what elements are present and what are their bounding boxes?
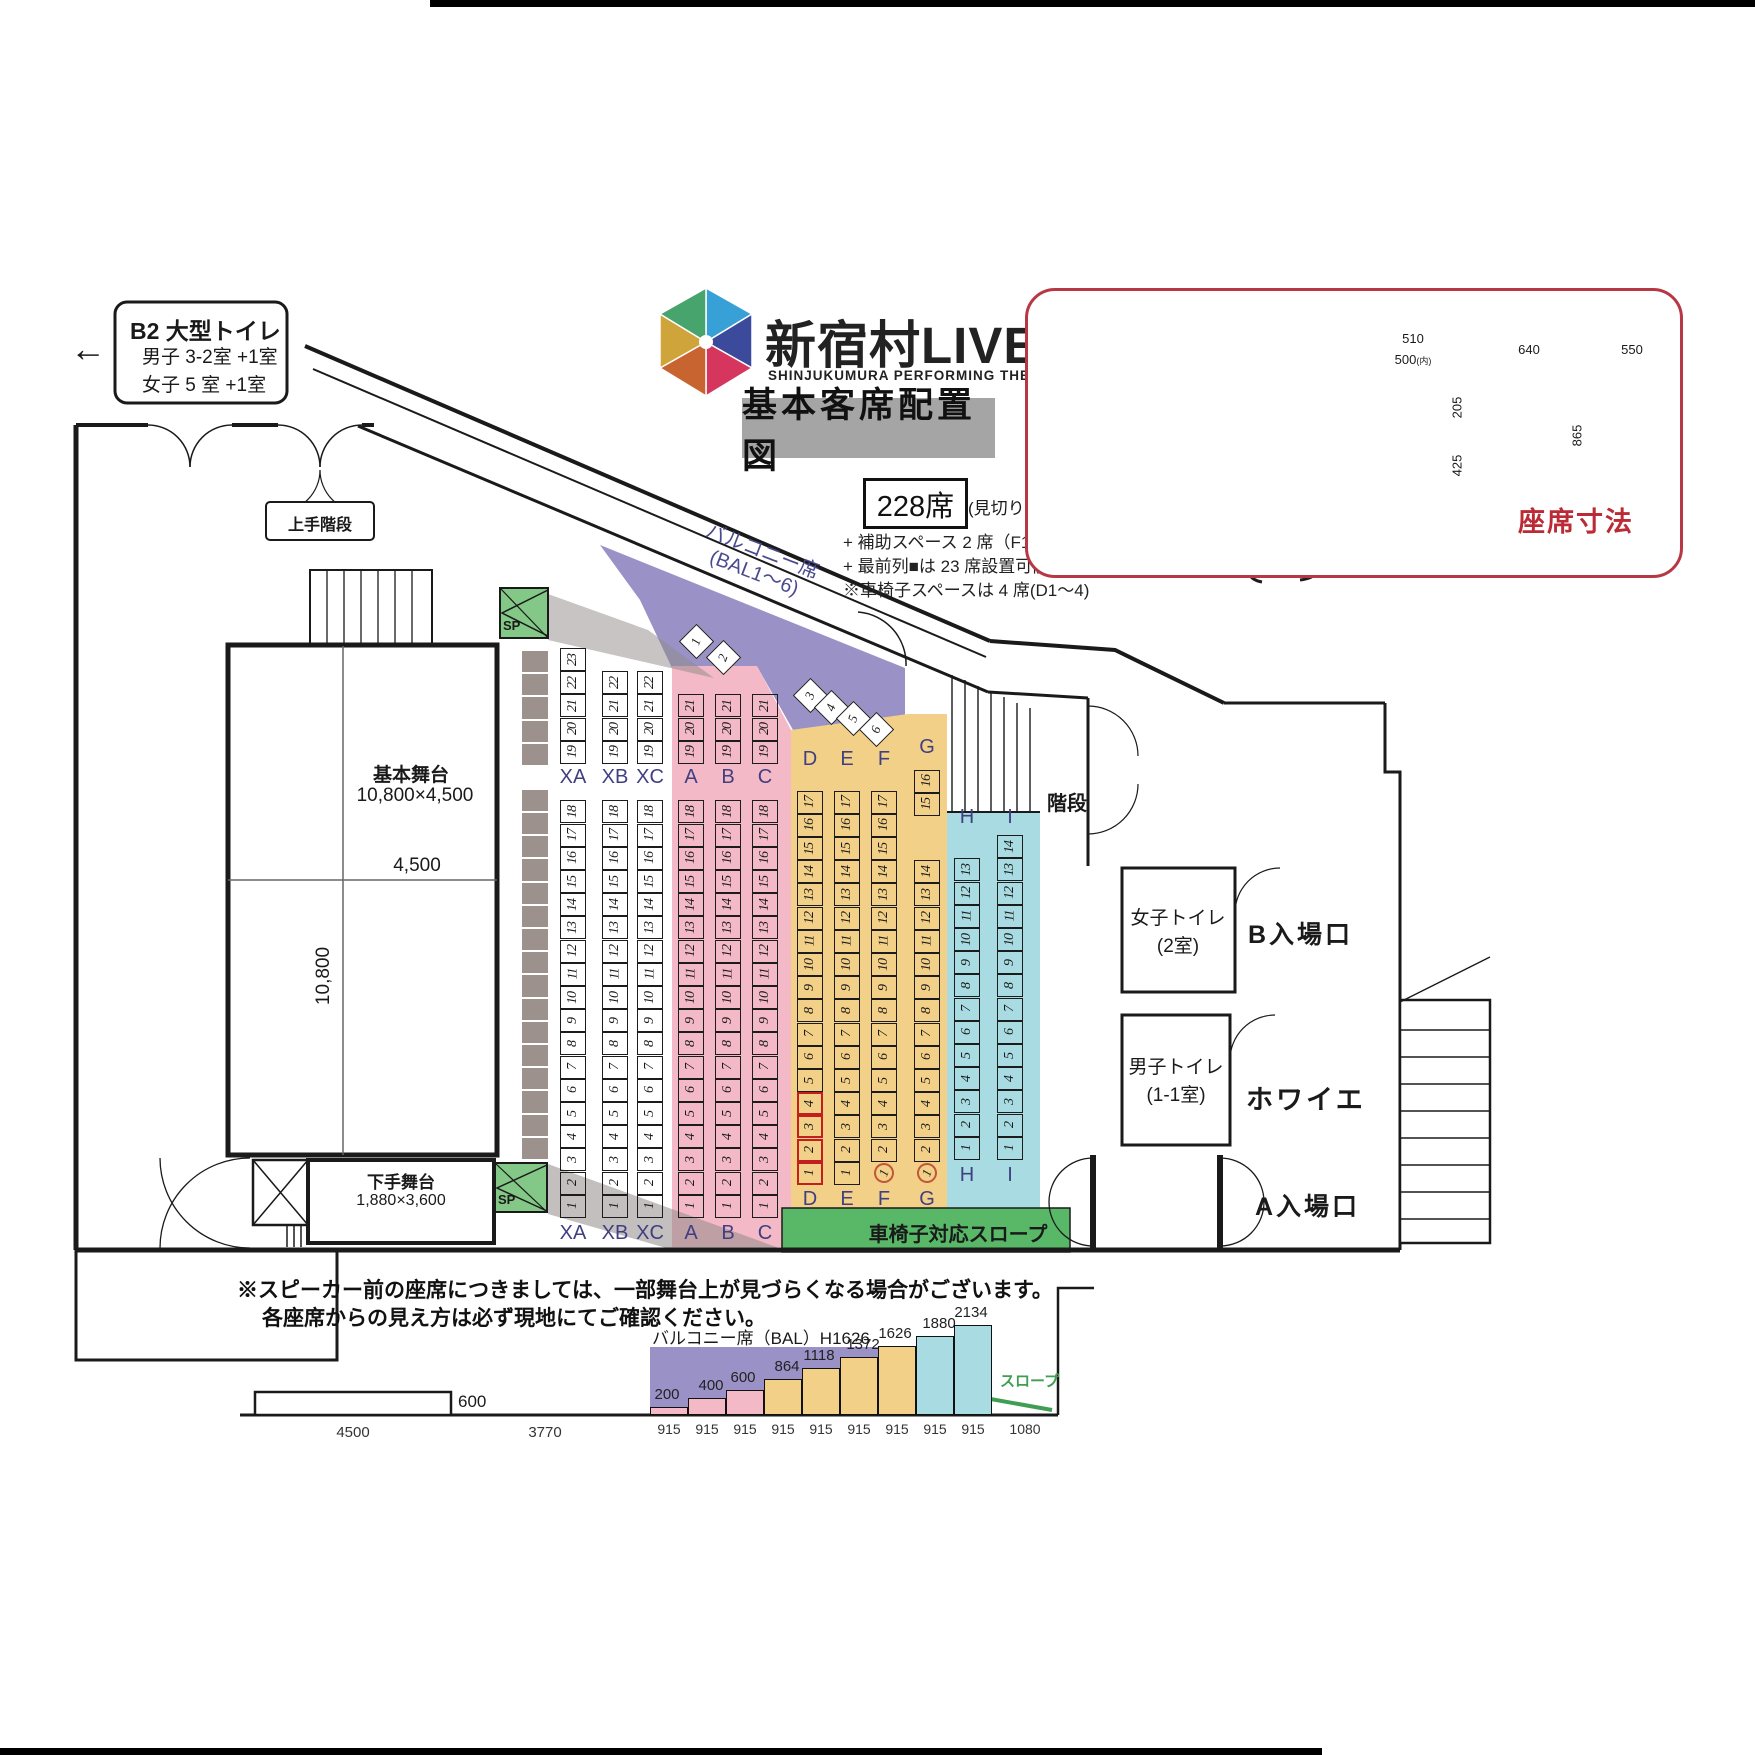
footnote-line2: 各座席からの見え方は必ず現地にてご確認ください。 xyxy=(262,1302,766,1332)
section-stage-height: 600 xyxy=(458,1392,486,1412)
section-step-width-9: 915 xyxy=(961,1421,984,1437)
footnote-line1: ※スピーカー前の座席につきましては、一部舞台上が見づらくなる場合がございます。 xyxy=(237,1274,1053,1304)
section-step-height-2134: 2134 xyxy=(954,1304,987,1321)
section-step-height-864: 864 xyxy=(774,1358,799,1375)
section-step-height-1372: 1372 xyxy=(846,1336,879,1353)
section-stage-width: 4500 xyxy=(336,1424,369,1441)
section-step-600 xyxy=(726,1390,764,1415)
seating-chart-page: ← B2 大型トイレ 男子 3-2室 +1室 女子 5 室 +1室 新宿村LIV… xyxy=(0,0,1755,1755)
section-step-400 xyxy=(688,1398,726,1415)
section-gap-width: 3770 xyxy=(528,1424,561,1441)
section-step-1880 xyxy=(916,1336,954,1415)
section-step-2134 xyxy=(954,1325,992,1415)
section-step-height-1880: 1880 xyxy=(922,1315,955,1332)
section-step-height-200: 200 xyxy=(654,1386,679,1403)
section-step-height-1626: 1626 xyxy=(878,1325,911,1342)
section-step-width-8: 915 xyxy=(923,1421,946,1437)
section-step-width-7: 915 xyxy=(885,1421,908,1437)
section-step-1118 xyxy=(802,1368,840,1415)
section-step-width-4: 915 xyxy=(771,1421,794,1437)
section-step-width-1: 915 xyxy=(657,1421,680,1437)
section-step-width-3: 915 xyxy=(733,1421,756,1437)
section-layer: 2009154009156009158649151118915137291516… xyxy=(0,0,1755,1755)
section-step-height-1118: 1118 xyxy=(803,1347,834,1364)
section-step-width-2: 915 xyxy=(695,1421,718,1437)
section-flat-width: 1080 xyxy=(1009,1421,1040,1437)
section-step-1626 xyxy=(878,1346,916,1415)
section-step-width-6: 915 xyxy=(847,1421,870,1437)
section-step-width-5: 915 xyxy=(809,1421,832,1437)
section-step-1372 xyxy=(840,1357,878,1415)
section-ramp-label: スロープ xyxy=(1000,1370,1059,1391)
section-step-864 xyxy=(764,1379,802,1415)
section-step-200 xyxy=(650,1407,688,1415)
section-step-height-600: 600 xyxy=(730,1369,755,1386)
section-step-height-400: 400 xyxy=(698,1377,723,1394)
